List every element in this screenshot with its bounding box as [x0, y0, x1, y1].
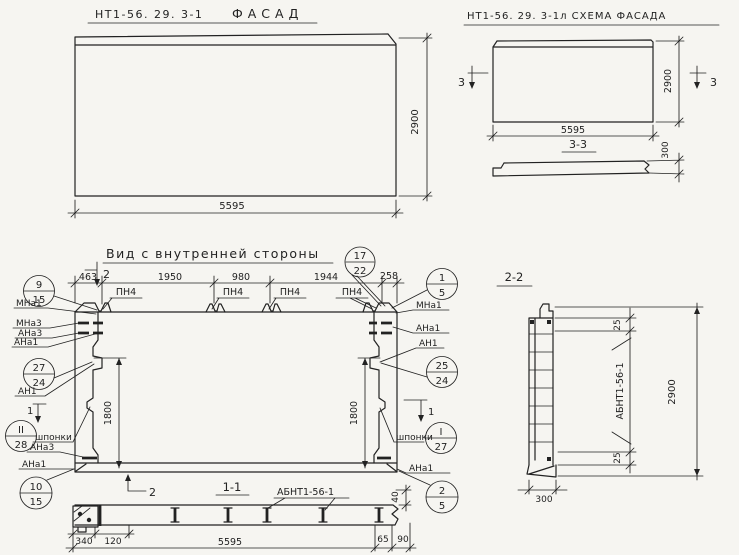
dim-1800: 1800	[103, 401, 114, 425]
inner-title: Вид с внутренней стороны	[106, 246, 320, 261]
schema-dim-thickness: 300	[647, 141, 684, 182]
label-shponki: шпонки	[396, 433, 433, 443]
dim-300: 300	[535, 495, 552, 505]
dim-1950: 1950	[158, 272, 182, 283]
cut-marker-1-right: 1	[404, 400, 434, 422]
schema-cut-marker-left: 3	[458, 66, 488, 89]
inner-panel-outline	[75, 303, 397, 472]
section-1-1: 2 1-1 АБНТ1-56-1 340 120	[66, 474, 416, 552]
facade-view: НТ1-56. 29. 3-1 ФАСАД 5595 2900	[68, 6, 432, 218]
dim-1800: 1800	[349, 401, 360, 425]
section-3-3-title: 3-3	[569, 138, 587, 151]
callout-top: 2	[439, 486, 445, 497]
dim-463: 463	[79, 272, 97, 283]
cut-label-2: 2	[149, 486, 156, 499]
beam-label: АБНТ1-56-1	[268, 487, 349, 510]
callout-top: 25	[436, 361, 449, 372]
callout-bottom: 5	[439, 501, 445, 512]
dim-5595: 5595	[218, 537, 242, 548]
dim-340: 340	[75, 537, 92, 547]
pn4-label: ПН4	[280, 287, 300, 298]
label-abnt: АБНТ1-56-1	[615, 363, 626, 420]
cut-label-2: 2	[103, 268, 110, 281]
callout-top: 9	[36, 280, 42, 291]
dim-65: 65	[377, 535, 388, 545]
section-2-2-body	[527, 304, 556, 477]
callout-top: 27	[33, 363, 46, 374]
callout-top: 1	[439, 273, 445, 284]
section-3-3-profile	[493, 161, 649, 176]
dim-2900: 2900	[667, 379, 678, 404]
label-shponki: шпонки	[35, 433, 72, 443]
facade-dim-width: 5595	[68, 200, 403, 218]
dim-2900: 2900	[663, 69, 674, 93]
facade-title-name: ФАСАД	[232, 6, 303, 21]
section-1-1-bar	[73, 505, 398, 532]
pn4-label: ПН4	[223, 287, 243, 298]
dim-5595: 5595	[219, 201, 244, 212]
schema-cut-marker-right: 3	[690, 66, 717, 89]
dim-1944: 1944	[314, 272, 338, 283]
dim-25-bottom: 25	[613, 452, 623, 463]
callout-27-24: 27 24	[24, 359, 93, 390]
facade-dim-height: 2900	[399, 33, 432, 201]
facade-title-code: НТ1-56. 29. 3-1	[95, 8, 203, 21]
section-2-2-beam-label: АБНТ1-56-1	[612, 338, 631, 444]
dim-120: 120	[104, 537, 121, 547]
schema-view: НТ1-56. 29. 3-1л СХЕМА ФАСАДА 3 3 2900 5…	[458, 11, 719, 182]
cut-label-3: 3	[710, 76, 717, 89]
callout-top: II	[18, 425, 24, 436]
callout-bottom: 27	[435, 442, 448, 453]
callout-bottom: 15	[30, 497, 43, 508]
callout-top: 10	[30, 482, 43, 493]
callout-bottom: 28	[15, 440, 28, 451]
callout-bottom: 24	[436, 376, 449, 387]
callout-top: I	[440, 427, 443, 438]
callout-top: 17	[354, 251, 367, 262]
cut-label-3: 3	[458, 76, 465, 89]
dim-980: 980	[232, 272, 250, 283]
label-mna1: МНа1	[16, 299, 42, 309]
callout-2-5: 2 5	[399, 471, 458, 513]
section-2-2-dim-width: 300	[518, 480, 567, 505]
dim-25-top: 25	[613, 319, 623, 330]
dim-2900: 2900	[410, 109, 421, 134]
cut-marker-2-bottom: 2	[125, 474, 156, 499]
callout-25-24: 25 24	[381, 357, 458, 388]
pn4-label: ПН4	[342, 287, 362, 298]
loop-labels-pn4: ПН4 ПН4 ПН4 ПН4	[103, 287, 376, 309]
facade-panel-outline	[75, 34, 396, 196]
cut-label-1: 1	[428, 407, 434, 418]
stiffener-marks	[171, 508, 383, 522]
callout-10-15: 10 15	[20, 469, 74, 509]
section-2-2: 2-2 25 25 АБНТ1-56-1 2900 300	[497, 270, 703, 505]
inner-dim-1800-right: 1800	[349, 358, 380, 468]
inner-view: Вид с внутренней стороны 17 22 463 1950 …	[6, 246, 459, 513]
label-an1: АН1	[419, 339, 438, 349]
label-ana3: АНа3	[30, 443, 54, 453]
label-mna3: МНа3	[16, 319, 42, 329]
label-ana1: АНа1	[409, 464, 433, 474]
section-1-1-title: 1-1	[223, 480, 242, 494]
drawing-canvas: НТ1-56. 29. 3-1 ФАСАД 5595 2900 НТ1-56. …	[0, 0, 739, 555]
dim-40: 40	[391, 491, 401, 503]
dim-258: 258	[380, 271, 398, 282]
schema-panel-outline	[493, 40, 653, 122]
pn4-label: ПН4	[116, 287, 136, 298]
label-mna1: МНа1	[416, 301, 442, 311]
label-ana1: АНа1	[22, 460, 46, 470]
section-1-1-dim-40: 40	[391, 485, 411, 511]
dim-300: 300	[661, 141, 671, 158]
label-abnt: АБНТ1-56-1	[277, 487, 334, 498]
callout-bottom: 22	[354, 266, 367, 277]
cut-marker-1-left: 1	[27, 404, 46, 423]
callout-bottom: 5	[439, 288, 445, 299]
label-ana1: АНа1	[416, 324, 440, 334]
section-2-2-title: 2-2	[505, 270, 524, 284]
schema-title: НТ1-56. 29. 3-1л СХЕМА ФАСАДА	[467, 11, 666, 22]
cut-label-1: 1	[27, 406, 33, 417]
schema-dim-height: 2900	[656, 36, 684, 127]
dim-5595: 5595	[561, 125, 585, 136]
label-ana1: АНа1	[14, 338, 38, 348]
inner-dim-1800-left: 1800	[94, 358, 126, 468]
dim-90: 90	[397, 535, 409, 545]
label-an1: АН1	[18, 387, 37, 397]
